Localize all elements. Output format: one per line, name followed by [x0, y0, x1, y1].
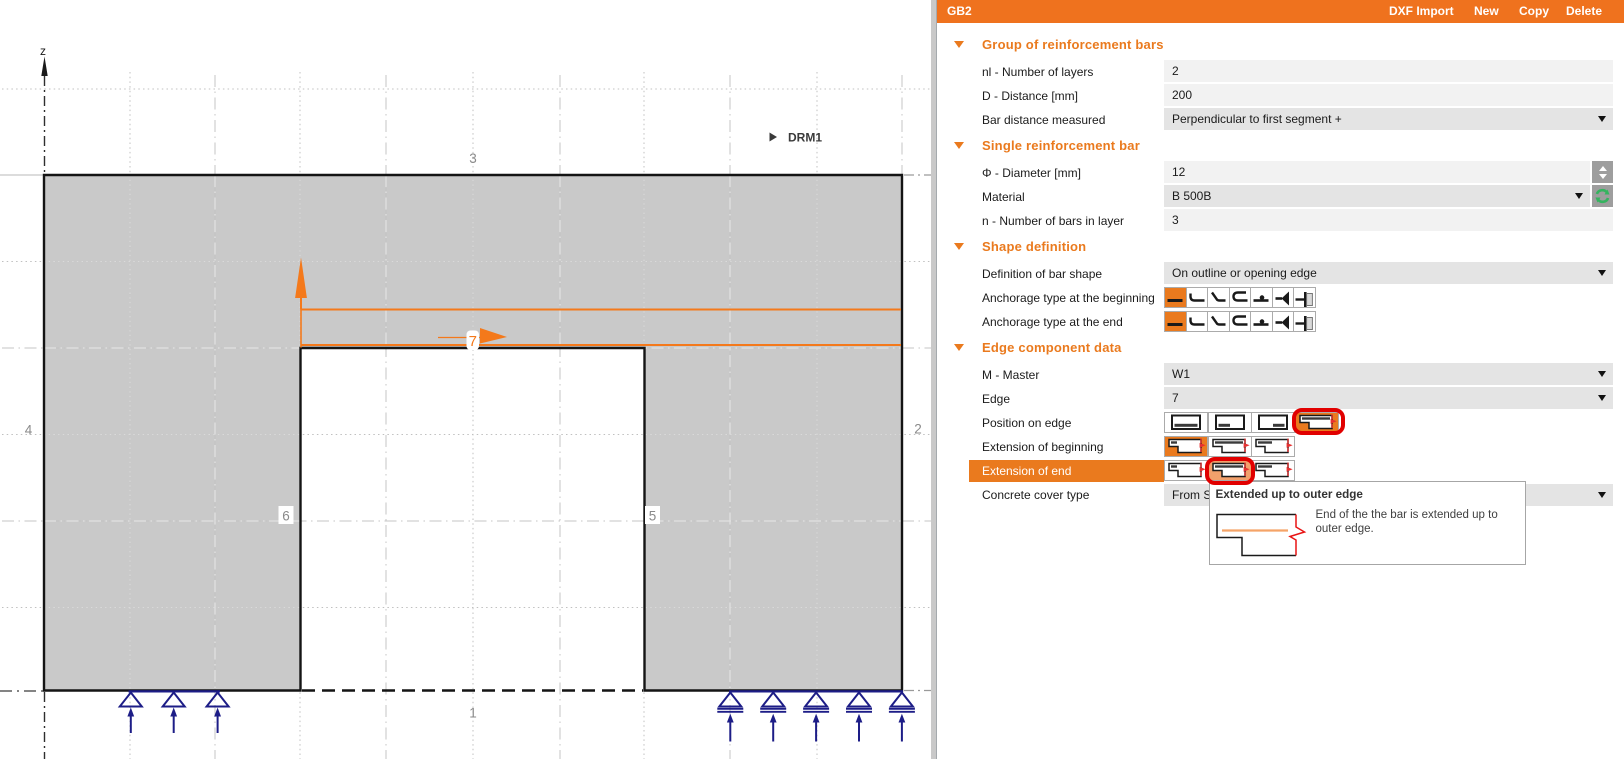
- svg-text:5: 5: [649, 509, 657, 524]
- svg-text:DRM1: DRM1: [788, 131, 822, 145]
- svg-text:3: 3: [469, 151, 477, 166]
- svg-text:2: 2: [914, 422, 922, 437]
- svg-text:6: 6: [282, 509, 290, 524]
- svg-text:z: z: [40, 44, 46, 58]
- svg-text:7: 7: [469, 333, 477, 350]
- svg-text:1: 1: [469, 706, 477, 721]
- svg-text:4: 4: [25, 423, 33, 438]
